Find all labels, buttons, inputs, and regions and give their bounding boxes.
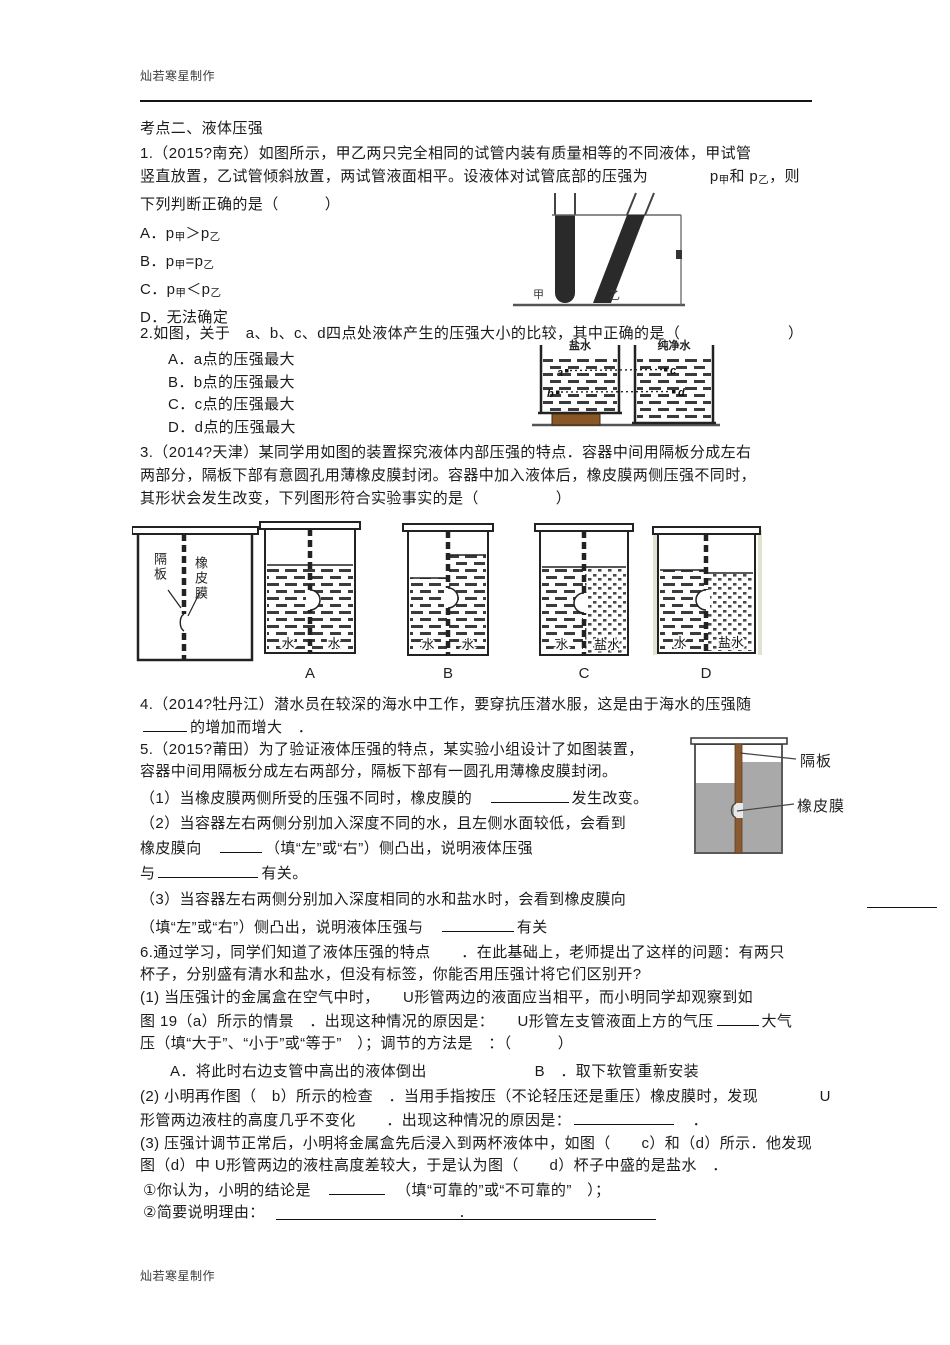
q1-line-2-text: 竖直放置，乙试管倾斜放置，两试管液面相平。设液体对试管底部的压强为 — [140, 168, 710, 185]
fill-in-blank — [143, 717, 187, 732]
water-label: 水 — [461, 637, 474, 652]
water-label: 水 — [555, 637, 568, 652]
height-tick-mark — [676, 250, 682, 259]
figure-label-a: A — [305, 665, 315, 682]
q2-option-c: C．c点的压强最大 — [168, 395, 295, 415]
fill-in-blank — [867, 893, 937, 908]
q5-part-3-line-1: （3）当容器左右两侧分别加入深度相同的水和盐水时，会看到橡皮膜向 — [140, 890, 626, 910]
fill-in-blank — [158, 863, 258, 878]
fill-in-blank — [329, 1180, 385, 1195]
label-jia: 甲 — [533, 289, 544, 301]
q1-line-1: 1.（2015?南充）如图所示，甲乙两只完全相同的试管内装有质量相等的不同液体，… — [140, 144, 751, 164]
point-a-marker — [565, 369, 569, 373]
point-d-label: d — [678, 387, 685, 399]
q6-line-2: 杯子，分别盛有清水和盐水，但没有标签，你能否用压强计将它们区别开? — [140, 965, 642, 985]
q6-line-10: 图（d）中 U形管两边的液柱高度差较大，于是认为图（ d）杯子中盛的是盐水 ． — [140, 1156, 728, 1176]
q3-containers-figure: 水 水 水 水 水 盐水 — [132, 518, 777, 683]
option-b-container: 水 水 — [403, 524, 493, 655]
q6-line-4: 图 19（a）所示的情景 ．出现这种情况的原因是： U形管左支管液面上方的气压大… — [140, 1011, 792, 1032]
header-divider — [140, 100, 812, 102]
vertical-tube-liquid — [555, 215, 575, 303]
q5-part-1: （1）当橡皮膜两侧所受的压强不同时，橡皮膜的 发生改变。 — [140, 788, 649, 809]
q5-part-2-line-3: 与有关。 — [140, 863, 308, 884]
fill-in-blank — [717, 1011, 759, 1026]
q6-choices: A．将此时右边支管中高出的液体倒出 B ．取下软管重新安装 — [170, 1062, 699, 1082]
figure-label-c: C — [579, 665, 590, 682]
salt-water-label: 盐水 — [718, 635, 744, 650]
q3-membrane-label: 橡皮膜 — [191, 556, 210, 601]
partition — [735, 744, 742, 853]
footer-credit: 灿若寒星制作 — [140, 1266, 215, 1286]
point-b-marker — [556, 391, 560, 395]
q3-line-3: 其形状会发生改变，下列图形符合实验事实的是（ ） — [140, 489, 571, 509]
q1-test-tubes-figure: 甲 乙 — [505, 190, 795, 315]
q5-part-2-line-1: （2）当容器左右两侧分别加入深度不同的水，且左侧水面较低，会看到 — [140, 814, 626, 834]
q2-beakers-figure: 盐水 纯净水 a c b d — [532, 336, 724, 431]
fill-in-blank — [220, 838, 262, 853]
point-a-label: a — [557, 367, 563, 379]
water-label: 水 — [673, 635, 686, 650]
pure-water-label: 纯净水 — [658, 338, 692, 352]
fill-in-blank — [491, 788, 569, 803]
q4-line-2: 的增加而增大 ． — [140, 717, 313, 738]
water-label: 水 — [421, 637, 434, 652]
q6-line-1: 6.通过学习，同学们知道了液体压强的特点 ．在此基础上，老师提出了这样的问题：有… — [140, 943, 785, 963]
q4-line-1: 4.（2014?牡丹江）潜水员在较深的海水中工作，要穿抗压潜水服，这是由于海水的… — [140, 695, 751, 715]
q5-line-1: 5.（2015?莆田）为了验证液体压强的特点，某实验小组设计了如图装置， — [140, 740, 644, 760]
q6-line-7: (2) 小明再作图（ b）所示的检查 ．当用手指按压（不论轻压还是重压）橡皮膜时… — [140, 1087, 831, 1107]
fill-in-blank — [574, 1110, 674, 1125]
q6-line-9: (3) 压强计调节正常后，小明将金属盒先后浸入到两杯液体中，如图（ c）和（d）… — [140, 1134, 812, 1154]
header-credit: 灿若寒星制作 — [140, 66, 215, 86]
point-c-label: c — [670, 365, 676, 377]
q3-partition-label: 隔板 — [150, 552, 169, 582]
right-liquid — [742, 762, 781, 852]
point-b-label: b — [547, 388, 554, 400]
q6-line-3: (1) 当压强计的金属盒在空气中时， U形管两边的液面应当相平，而小明同学却观察… — [140, 988, 753, 1008]
q1-option-c: C．p甲＜p乙 — [140, 280, 221, 300]
salt-water-label: 盐水 — [594, 637, 620, 652]
q6-sub-1: ①你认为，小明的结论是 （填“可靠的”或“不可靠的” ）； — [143, 1180, 610, 1201]
wooden-block — [552, 414, 600, 425]
point-d-marker — [672, 390, 676, 394]
q3-line-1: 3.（2014?天津）某同学用如图的装置探究液体内部压强的特点．容器中间用隔板分… — [140, 443, 751, 463]
q4-line-2-text: 的增加而增大 ． — [190, 719, 313, 736]
point-c-marker — [664, 368, 668, 372]
q1-line-2-pressure: p甲和 p乙，则 — [710, 168, 800, 185]
q5-part-2-line-2: 橡皮膜向 （填“左”或“右”）侧凸出，说明液体压强 — [140, 838, 533, 859]
salt-water-label: 盐水 — [569, 338, 592, 352]
water-label: 水 — [327, 636, 340, 651]
label-yi: 乙 — [609, 289, 620, 302]
q1-option-a: A．p甲＞p乙 — [140, 224, 221, 244]
q5-partition-label: 隔板 — [800, 750, 832, 771]
section-title: 考点二、液体压强 — [140, 119, 263, 139]
option-d-container: 水 盐水 — [653, 527, 762, 655]
q5-part-3-line-2: （填“左”或“右”）侧凸出，说明液体压强与 有关 — [140, 917, 548, 938]
fill-in-blank: ． — [276, 1205, 656, 1220]
q2-option-b: B．b点的压强最大 — [168, 373, 295, 393]
q5-line-2: 容器中间用隔板分成左右两部分，隔板下部有一圆孔用薄橡皮膜封闭。 — [140, 762, 617, 782]
q6-line-8: 形管两边液柱的高度几乎不变化 ．出现这种情况的原因是： ． — [140, 1110, 708, 1131]
figure-label-b: B — [443, 665, 453, 682]
q1-option-b: B．p甲=p乙 — [140, 252, 214, 272]
salt-water-liquid — [543, 356, 617, 412]
option-c-container: 水 盐水 — [535, 524, 633, 655]
figure-label-d: D — [701, 665, 712, 682]
option-a-container: 水 水 — [260, 522, 360, 653]
q1-line-2: 竖直放置，乙试管倾斜放置，两试管液面相平。设液体对试管底部的压强为 p甲和 p乙… — [140, 167, 800, 187]
worksheet-page: 灿若寒星制作 考点二、液体压强 1.（2015?南充）如图所示，甲乙两只完全相同… — [0, 0, 950, 1345]
fill-in-blank — [442, 917, 514, 932]
lid — [691, 738, 787, 744]
q6-sub-2: ②简要说明理由： ． — [143, 1203, 659, 1223]
q3-line-2: 两部分，隔板下部有意圆孔用薄橡皮膜封闭。容器中加入液体后，橡皮膜两侧压强不同时， — [140, 466, 756, 486]
q5-membrane-label: 橡皮膜 — [797, 795, 845, 816]
left-liquid — [696, 783, 735, 852]
q6-line-5: 压（填“大于”、“小于”或“等于” ）；调节的方法是 ：（ ） — [140, 1034, 573, 1054]
q2-option-a: A．a点的压强最大 — [168, 350, 295, 370]
water-label: 水 — [281, 636, 294, 651]
q1-line-3: 下列判断正确的是（ ） — [140, 195, 340, 215]
q2-option-d: D．d点的压强最大 — [168, 418, 296, 438]
